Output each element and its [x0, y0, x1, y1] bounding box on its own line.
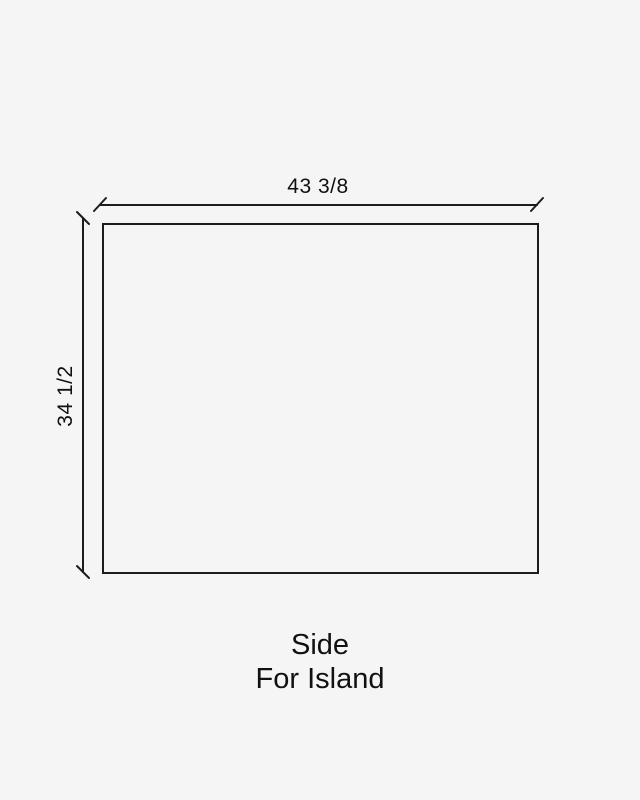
panel-rectangle [103, 224, 538, 573]
caption: Side For Island [256, 628, 385, 696]
width-dimension-line [94, 198, 543, 211]
caption-line-2: For Island [256, 662, 385, 696]
caption-line-1: Side [256, 628, 385, 662]
drawing-canvas: 43 3/8 34 1/2 Side For Island [0, 0, 640, 800]
height-dimension-label: 34 1/2 [54, 365, 78, 426]
height-dimension-line [77, 212, 89, 578]
width-dimension-label: 43 3/8 [287, 175, 348, 199]
